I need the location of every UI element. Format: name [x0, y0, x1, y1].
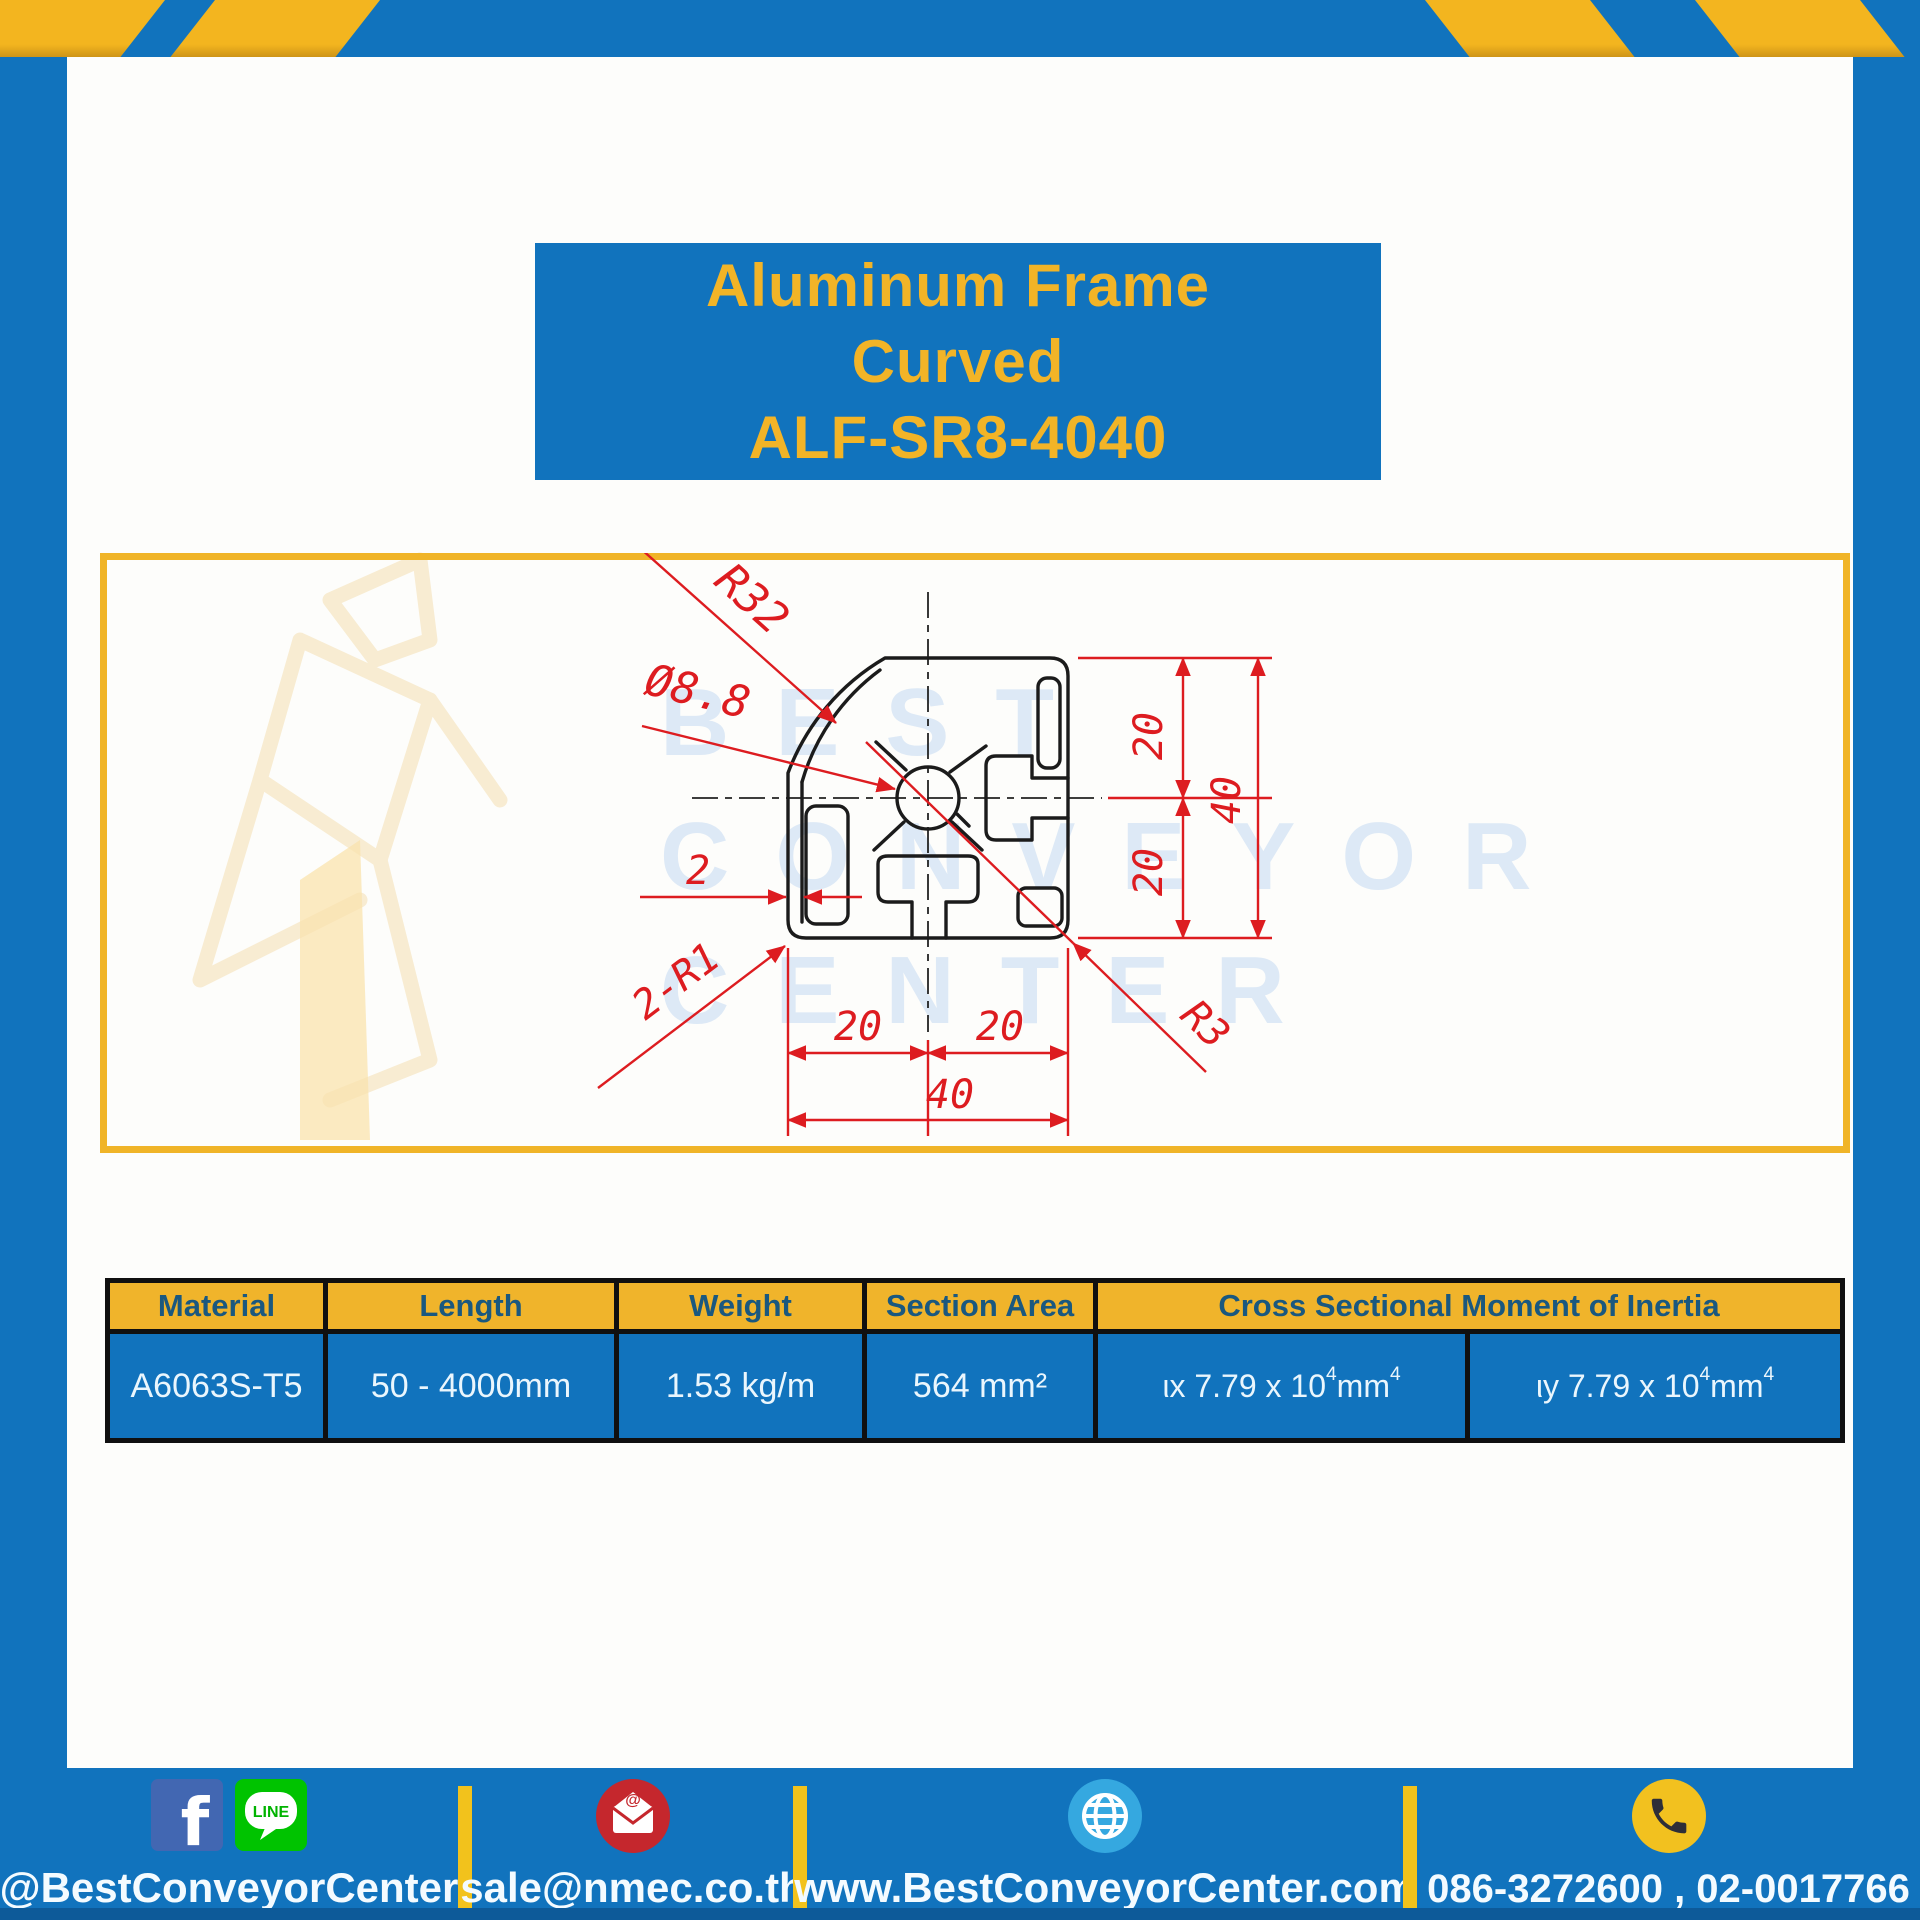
cell-length: 50 - 4000mm: [328, 1334, 614, 1438]
website-url[interactable]: www.BestConveyorCenter.com: [794, 1864, 1416, 1912]
hazard-stripe-icon: [1695, 0, 1905, 57]
hazard-stripe-icon: [1425, 0, 1635, 57]
line-app-icon[interactable]: LINE: [235, 1779, 307, 1851]
social-handle[interactable]: @BestConveyorCenter: [0, 1864, 458, 1912]
inertia-x-exponent: 4: [1326, 1364, 1337, 1386]
footer-website-section: www.BestConveyorCenter.com: [807, 1779, 1403, 1912]
footer-social-section: f LINE @BestConveyorCenter: [0, 1779, 458, 1912]
dim-label-40-bottom: 40: [926, 1072, 974, 1118]
footer-divider: [1403, 1786, 1417, 1912]
bottom-edge-strip: [0, 1908, 1920, 1920]
title-box: Aluminum Frame Curved ALF-SR8-4040: [535, 243, 1381, 480]
email-icon[interactable]: @: [596, 1779, 670, 1853]
dim-label-2-r1: 2-R1: [624, 934, 729, 1029]
dimension-labels: 20 20 40 20 20 40 R32 Ø8.8 2 2-R1 R3: [624, 554, 1250, 1118]
inertia-y-unit: mm: [1710, 1368, 1763, 1405]
dim-label-20-right: 20: [976, 1004, 1024, 1050]
inertia-y-exponent: 4: [1700, 1364, 1711, 1386]
footer-email-section: @ sale@nmec.co.th: [472, 1779, 793, 1912]
dim-label-20-left: 20: [834, 1004, 882, 1050]
hazard-stripe-icon: [170, 0, 380, 57]
dim-label-wall-thickness: 2: [686, 848, 710, 894]
inertia-x-unit: mm: [1337, 1368, 1390, 1405]
header-weight: Weight: [619, 1283, 862, 1329]
product-category: Aluminum Frame: [706, 248, 1210, 324]
product-type: Curved: [852, 324, 1065, 400]
header-material: Material: [110, 1283, 323, 1329]
spec-table: Material Length Weight Section Area Cros…: [105, 1278, 1845, 1443]
phone-icon[interactable]: [1632, 1779, 1706, 1853]
cell-inertia-y: ιy 7.79 x 104 mm4: [1470, 1334, 1840, 1438]
product-code: ALF-SR8-4040: [749, 400, 1168, 476]
svg-text:@: @: [625, 1792, 641, 1809]
inertia-x-unit-exponent: 4: [1390, 1364, 1401, 1386]
facebook-icon[interactable]: f: [151, 1779, 223, 1851]
cell-inertia-x: ιx 7.79 x 104 mm4: [1098, 1334, 1465, 1438]
footer-phone-section: 086-3272600 , 02-0017766: [1417, 1779, 1920, 1912]
phone-numbers[interactable]: 086-3272600 , 02-0017766: [1427, 1867, 1910, 1912]
cell-material: A6063S-T5: [110, 1334, 323, 1438]
dim-label-bore-diameter: Ø8.8: [640, 654, 755, 729]
cell-section-area: 564 mm²: [867, 1334, 1093, 1438]
inertia-y-unit-exponent: 4: [1763, 1364, 1774, 1386]
email-address[interactable]: sale@nmec.co.th: [460, 1864, 804, 1912]
cell-weight: 1.53 kg/m: [619, 1334, 862, 1438]
globe-icon[interactable]: [1068, 1779, 1142, 1853]
profile-cross-section-drawing: 20 20 40 20 20 40 R32 Ø8.8 2 2-R1 R3: [100, 553, 1850, 1153]
dimension-lines: [598, 553, 1272, 1136]
header-length: Length: [328, 1283, 614, 1329]
hazard-stripe-icon: [0, 0, 165, 57]
line-label: LINE: [253, 1804, 290, 1821]
inertia-y-base: ιy 7.79 x 10: [1536, 1368, 1700, 1405]
inertia-x-base: ιx 7.79 x 10: [1162, 1368, 1326, 1405]
header-section-area: Section Area: [867, 1283, 1093, 1329]
product-sheet: BEST CONVEYOR CENTER Aluminum Frame Curv…: [0, 0, 1920, 1920]
dim-label-20-bottom-right: 20: [1126, 848, 1172, 896]
dim-label-40-right: 40: [1204, 776, 1250, 824]
svg-text:f: f: [181, 1784, 211, 1851]
dim-label-r32: R32: [705, 554, 798, 645]
header-moment-of-inertia: Cross Sectional Moment of Inertia: [1098, 1283, 1840, 1329]
dim-label-20-top-right: 20: [1126, 712, 1172, 760]
